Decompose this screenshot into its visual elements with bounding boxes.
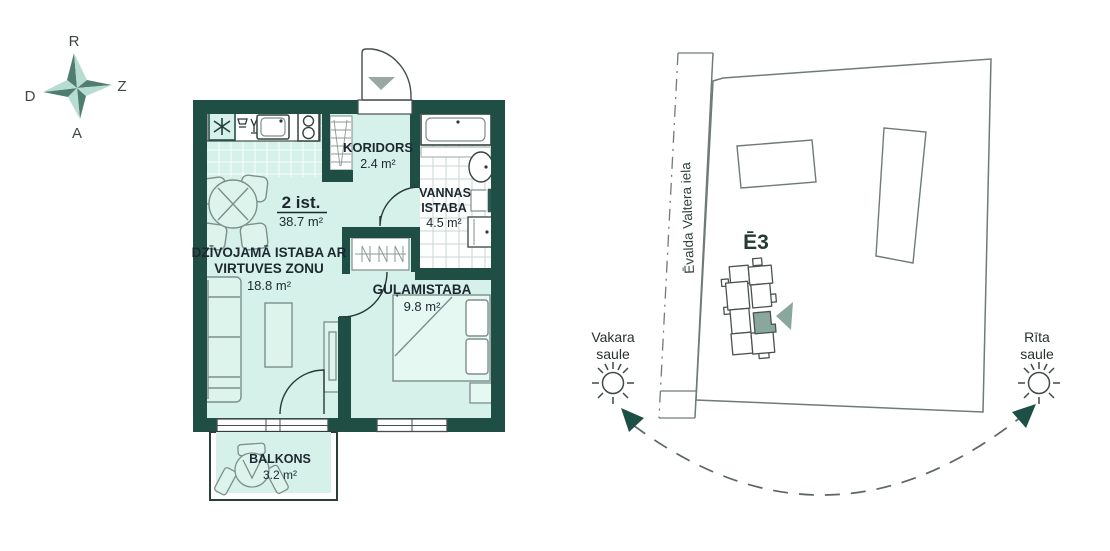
plot-boundary (696, 59, 991, 412)
compass-label-south: A (72, 125, 82, 142)
hob-icon (298, 113, 319, 141)
room-label-living-1: DZĪVOJAMĀ ISTABA AR (192, 245, 347, 260)
arrowhead-evening-icon (621, 408, 644, 432)
room-area-koridors: 2.4 m² (360, 157, 395, 171)
room-label-koridors: KORIDORS (343, 140, 413, 155)
room-area-bathroom: 4.5 m² (426, 216, 461, 230)
entrance-door-leaf (362, 49, 411, 100)
compass-label-east: Z (117, 78, 126, 95)
compass-label-north: R (69, 33, 80, 50)
morning-sun-label-2: saule (1020, 346, 1054, 362)
sun-icon-evening (592, 362, 634, 404)
sun-icon-morning (1018, 362, 1060, 404)
coffee-table-icon (265, 303, 292, 367)
pillow-icon (466, 300, 488, 336)
compass-star (43, 53, 112, 119)
balcony (210, 432, 337, 500)
room-label-bedroom: GUĻAMISTABA (373, 282, 472, 297)
room-label-bathroom-2: ISTABA (421, 201, 467, 215)
sun-path-arc (633, 417, 1021, 495)
washbasin-icon (469, 152, 493, 182)
apartment-title: 2 ist. (282, 193, 321, 212)
room-area-bedroom: 9.8 m² (404, 299, 442, 314)
subject-building-footprint (720, 257, 782, 361)
kitchen-sink-icon (257, 115, 289, 139)
neighbour-building-1 (737, 140, 816, 188)
compass-label-west: D (25, 88, 36, 105)
kitchen-counter (207, 113, 320, 141)
site-plan: Ēvalda Valtera iela Ē3 Vakar (591, 53, 1060, 495)
bedroom-wardrobe-icon (352, 238, 409, 270)
arrowhead-morning-icon (1012, 404, 1036, 428)
building-label: Ē3 (743, 231, 769, 254)
bedroom-window (377, 419, 447, 432)
living-room-window (217, 419, 328, 432)
morning-sun: Rīta saule (1018, 329, 1060, 404)
highlighted-unit (753, 311, 776, 334)
pillow-icon (466, 339, 488, 374)
bathtub-icon (421, 114, 491, 157)
unit-pointer-icon (776, 302, 793, 330)
room-label-living-2: VIRTUVES ZONU (214, 261, 324, 276)
evening-sun-label-2: saule (596, 346, 630, 362)
bedside-bench-icon (470, 383, 492, 403)
compass-rose: R Z A D (25, 33, 127, 142)
room-area-balcony: 3.2 m² (263, 468, 297, 482)
evening-sun: Vakara saule (591, 329, 635, 404)
apartment-floor-plan: 2 ist. 38.7 m² KORIDORS 2.4 m² VANNAS IS… (192, 49, 505, 500)
evening-sun-label-1: Vakara (591, 329, 635, 345)
floorplan-page: R Z A D (0, 0, 1110, 551)
room-label-bathroom-1: VANNAS (419, 186, 471, 200)
entrance-door (358, 49, 412, 114)
neighbour-building-2 (876, 128, 926, 263)
room-label-balcony: BALKONS (249, 452, 311, 466)
room-area-living: 18.8 m² (247, 278, 292, 293)
morning-sun-label-1: Rīta (1024, 329, 1050, 345)
plan-drawing: R Z A D (0, 0, 1110, 551)
apartment-total-area: 38.7 m² (279, 214, 324, 229)
